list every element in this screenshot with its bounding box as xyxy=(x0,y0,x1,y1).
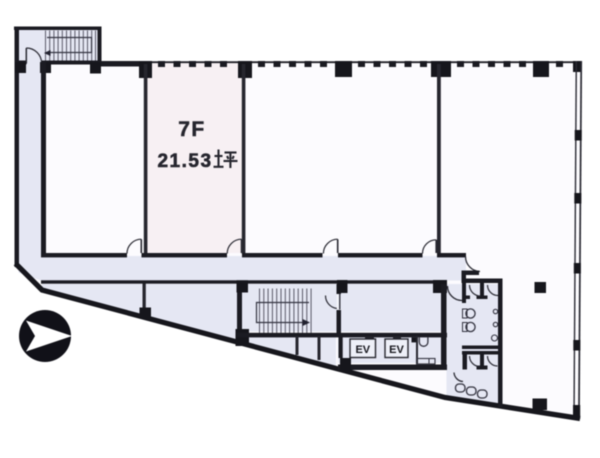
svg-text:7F: 7F xyxy=(178,118,206,141)
svg-text:21.53: 21.53 xyxy=(157,151,212,172)
svg-text:EV: EV xyxy=(389,344,404,356)
svg-text:EV: EV xyxy=(355,344,370,356)
